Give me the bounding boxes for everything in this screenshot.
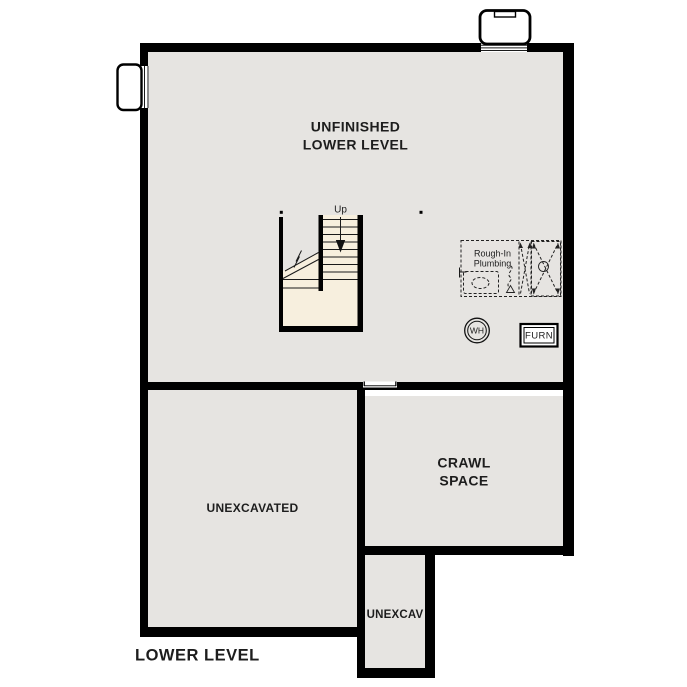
wall-left bbox=[140, 43, 148, 637]
wall-crawl-bottom bbox=[357, 546, 574, 555]
chimney-flue bbox=[495, 12, 516, 18]
crawl-space-floor bbox=[365, 396, 563, 546]
plumbing-label-line2: Plumbing bbox=[474, 259, 512, 269]
unexcavated-label: UNEXCAVATED bbox=[207, 501, 299, 515]
crawl-access-opening bbox=[363, 382, 397, 388]
unexcav-small-label: UNEXCAV bbox=[367, 609, 424, 621]
access-tick-right bbox=[395, 382, 396, 387]
wall-right bbox=[563, 43, 574, 556]
wall-unexcavated-bottom bbox=[140, 627, 365, 637]
chimney-bay bbox=[480, 11, 530, 53]
furnace: FURN bbox=[521, 324, 558, 347]
main-room-label-line2: LOWER LEVEL bbox=[303, 137, 409, 153]
floor-plan-page: Up Rough-In Plumbing bbox=[0, 0, 687, 687]
crawl-space-label-line1: CRAWL bbox=[437, 455, 490, 471]
column-marker bbox=[420, 211, 423, 214]
column-marker bbox=[280, 211, 283, 214]
wall-unexcav-right bbox=[425, 546, 435, 678]
floor-plan-drawing: Up Rough-In Plumbing bbox=[0, 0, 687, 687]
plan-title: LOWER LEVEL bbox=[135, 647, 260, 665]
stair-wall-right bbox=[358, 215, 364, 332]
stairs-up-label: Up bbox=[334, 205, 347, 216]
main-room-label-line1: UNFINISHED bbox=[311, 119, 401, 135]
left-window-bay bbox=[118, 65, 150, 111]
stair-wall-bottom bbox=[279, 326, 363, 332]
bay-outline bbox=[118, 65, 142, 111]
stair-wall-partition bbox=[319, 215, 324, 291]
access-tick-left bbox=[364, 382, 365, 387]
stair-wall-left bbox=[279, 217, 283, 332]
crawl-space-label-line2: SPACE bbox=[439, 473, 488, 489]
water-heater-label: WH bbox=[470, 326, 484, 336]
access-opening-gap bbox=[363, 382, 397, 388]
wall-unexcav-bottom bbox=[357, 668, 435, 678]
furnace-label: FURN bbox=[525, 331, 553, 342]
plumbing-label-line1: Rough-In bbox=[474, 249, 511, 259]
